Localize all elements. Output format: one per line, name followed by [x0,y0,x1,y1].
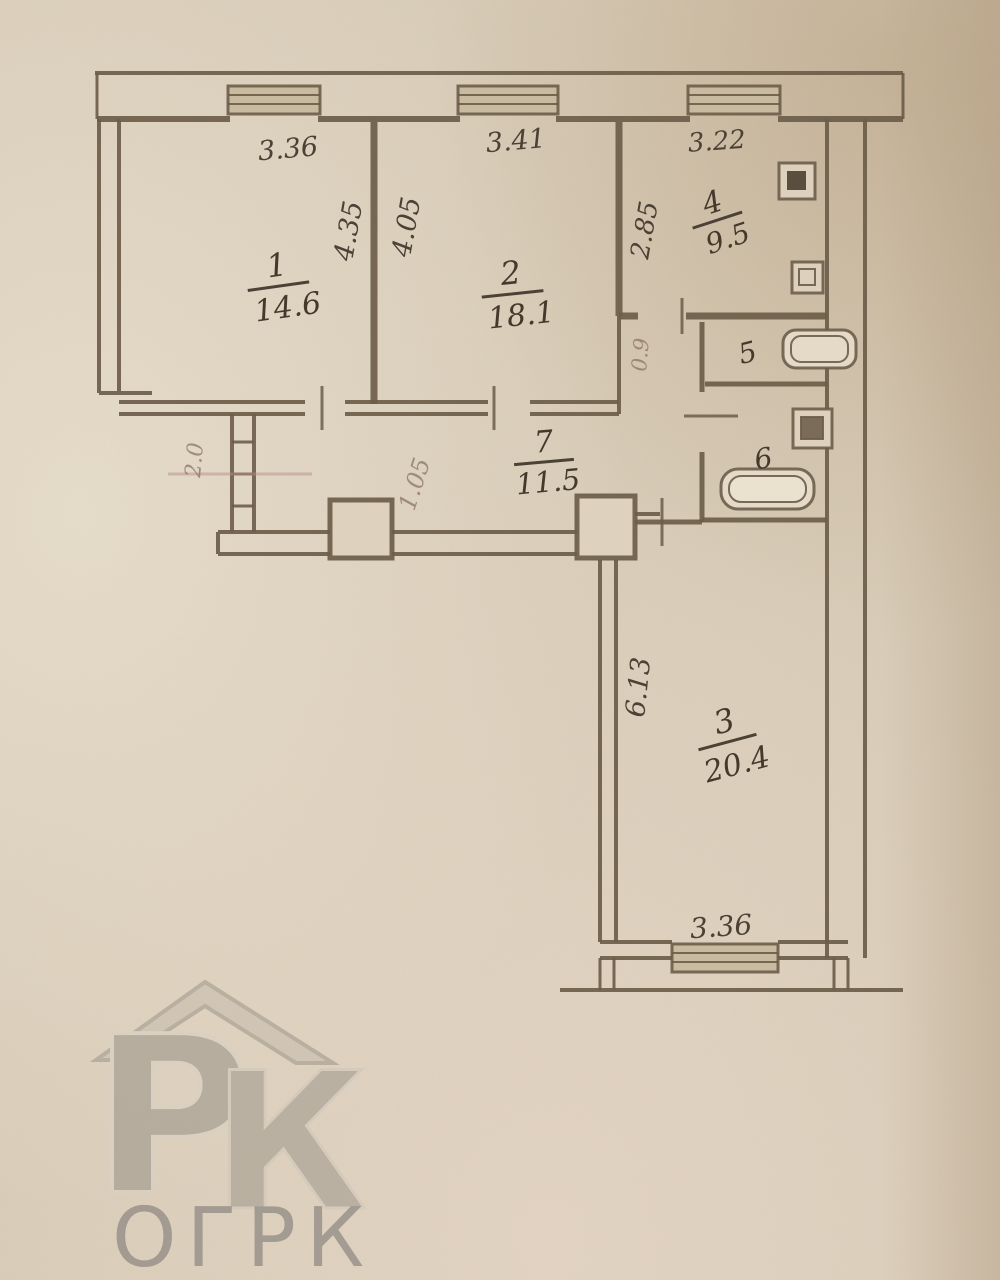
room-2-number: 2 [497,253,522,293]
room-7-area: 11.5 [514,462,581,501]
dim-room4-top: 3.22 [687,125,747,159]
pencil-dim-kitchen-door: 0.9 [627,337,654,372]
stove-icon [779,163,815,199]
floor-plan-svg: Р К ОГРК [0,0,1000,1280]
window-room-3 [672,944,778,972]
window-room-1 [228,86,320,114]
watermark-brand-text: ОГРК [112,1191,374,1280]
dim-room3-left: 6.13 [620,656,657,719]
dim-room2-top: 3.41 [485,123,548,159]
room-2-area: 18.1 [486,295,556,337]
wash-basin-icon [793,409,832,448]
dim-room3-bottom: 3.36 [689,908,753,945]
bath-icon [721,469,814,509]
bathtub-icon [783,330,856,368]
dim-room1-top: 3.36 [257,131,320,167]
window-room-2 [458,86,558,114]
pencil-dim-closet: 2.0 [181,441,209,479]
kitchen-sink-icon [792,262,823,293]
window-room-4 [688,86,780,114]
scanned-floor-plan-page: Р К ОГРК [0,0,1000,1280]
